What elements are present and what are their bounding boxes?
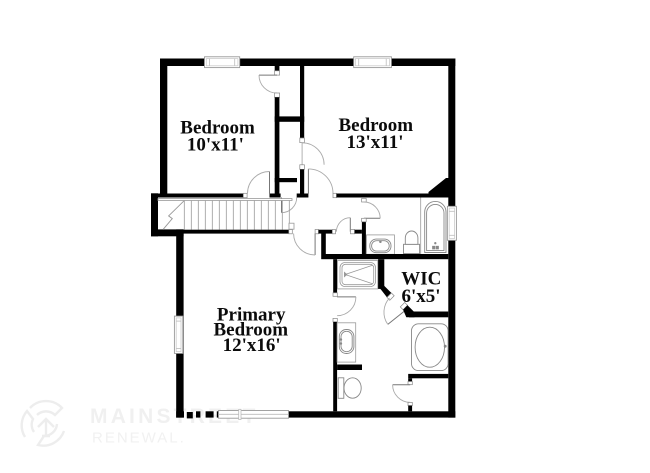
svg-text:13'x11': 13'x11'	[346, 132, 403, 153]
svg-text:12'x16': 12'x16'	[223, 335, 281, 356]
svg-text:RENEWAL.: RENEWAL.	[92, 430, 186, 447]
svg-text:6'x5': 6'x5'	[401, 286, 440, 307]
svg-text:10'x11': 10'x11'	[187, 135, 244, 156]
